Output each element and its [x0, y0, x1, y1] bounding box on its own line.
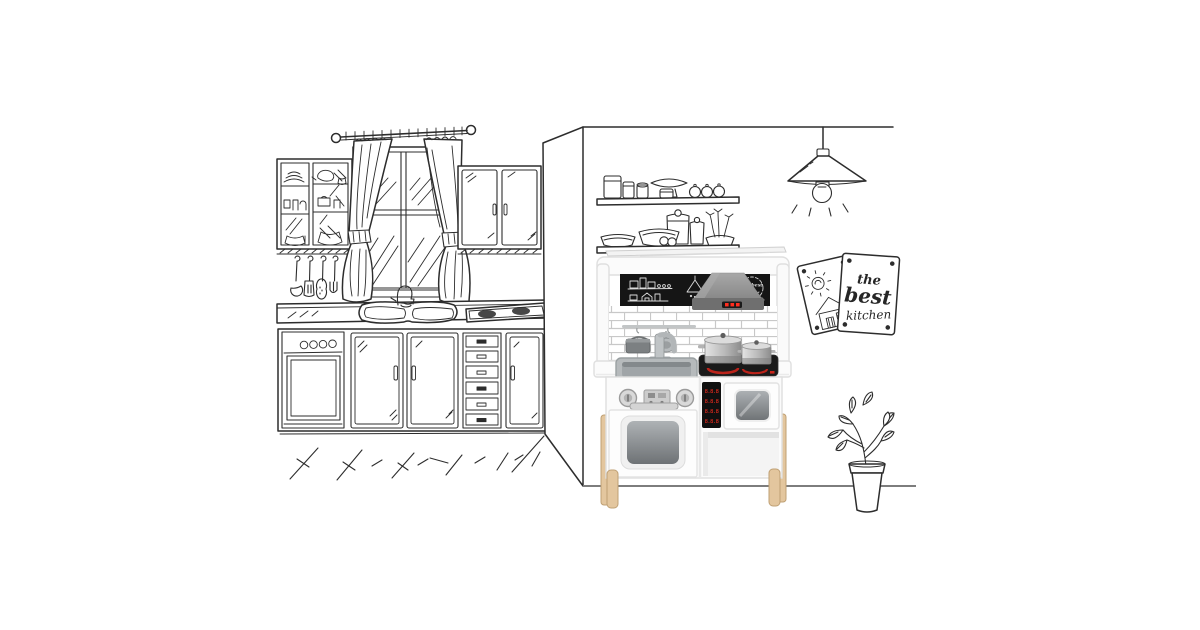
pinned-cards: the best kitchen [797, 253, 900, 335]
potted-plant-sketch [828, 392, 894, 512]
toy-kitchen: the best [594, 247, 791, 508]
toy-open-shelf [703, 432, 779, 476]
sketch-glass-cabinet [277, 159, 352, 254]
shelf-lower-items [601, 209, 734, 248]
sketch-floor-strokes [290, 448, 540, 480]
sketch-hanging-utensils [291, 256, 338, 299]
plant-pot [849, 461, 885, 512]
led-row-2: 8.8.8 [705, 399, 719, 405]
toy-lower-cabinet: 8.8.8 8.8.8 8.8.8 8.8.8 [606, 377, 782, 478]
led-row-1: 8.8.8 [705, 389, 719, 395]
pendant-lamp-sketch [788, 127, 866, 216]
card-text-kitchen: kitchen [846, 307, 892, 323]
toy-microwave [724, 383, 779, 429]
sketch-door-2 [407, 333, 458, 428]
toy-control-panel: 8.8.8 8.8.8 8.8.8 8.8.8 [702, 382, 721, 428]
sketch-drawer-stack [463, 333, 501, 428]
card-front: the best kitchen [837, 253, 899, 335]
microwave-window [735, 390, 770, 421]
shelf-upper [597, 176, 739, 205]
scene-svg: the best kitchen [0, 0, 1200, 630]
oven-handle [630, 403, 678, 410]
lamp-rays [792, 204, 848, 216]
hanging-pot [626, 337, 650, 353]
sketch-kitchen-room [277, 126, 547, 481]
oven-window [627, 421, 679, 464]
led-row-3: 8.8.8 [705, 409, 719, 415]
hood-led-dots [725, 303, 740, 306]
card-text-best: best [844, 282, 894, 309]
toy-oven [609, 390, 697, 478]
led-row-4: 8.8.8 [705, 419, 719, 425]
sketch-door-1 [351, 333, 403, 428]
shelf-lower [597, 209, 739, 253]
sketch-upper-cabinets-right [458, 166, 541, 254]
sketch-base-cabinets [278, 329, 547, 434]
sketch-door-3 [506, 333, 543, 428]
shelf-upper-items [604, 176, 725, 198]
wall-shelves-sketch [597, 176, 739, 253]
product-illustration: the best kitchen [0, 0, 1200, 630]
sketch-oven [282, 332, 344, 428]
plant-stems [843, 424, 884, 466]
